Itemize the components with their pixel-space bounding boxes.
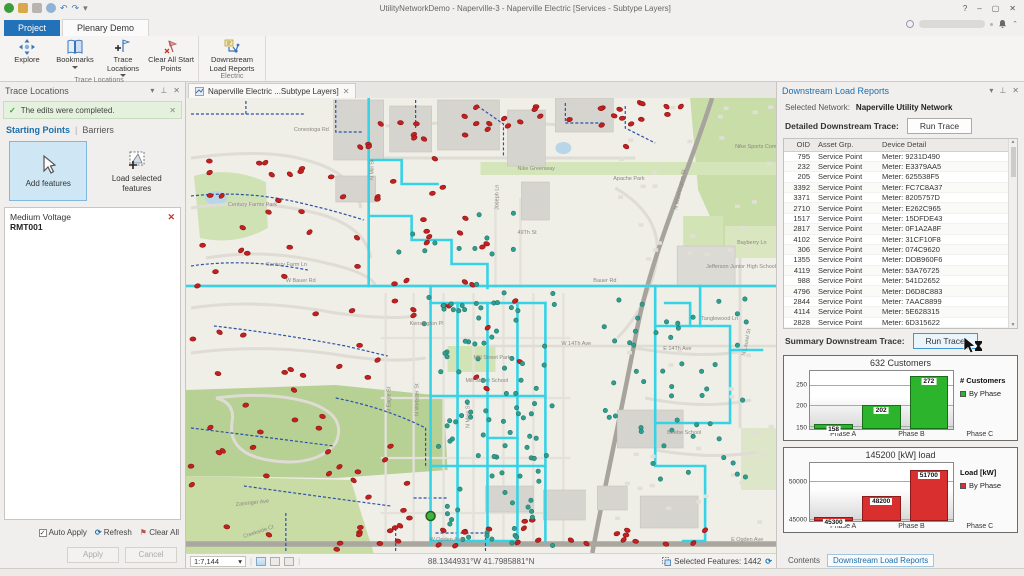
- chart-title: 145200 [kW] load: [787, 449, 1014, 462]
- selected-service-point-dot: [740, 398, 744, 402]
- service-point-dot: [256, 161, 263, 166]
- selected-service-point-dot: [473, 246, 477, 250]
- map-street-label: Nike Sports Complex: [735, 144, 776, 150]
- table-row[interactable]: 4796Service PointMeter: D6D8C883: [784, 286, 1008, 296]
- selected-service-point-dot: [462, 307, 466, 311]
- minimize-button[interactable]: –: [977, 4, 981, 13]
- selected-service-point-dot: [632, 343, 636, 347]
- table-row[interactable]: 2817Service PointMeter: 0F1A2A8F: [784, 224, 1008, 234]
- selected-service-point-dot: [485, 534, 489, 538]
- tab-downstream-load-reports[interactable]: Downstream Load Reports: [827, 554, 934, 567]
- table-header-row: OID Asset Grp. Device Detail: [784, 139, 1008, 151]
- map-building: [703, 495, 708, 499]
- selected-service-point-dot: [397, 250, 401, 254]
- selected-service-point-dot: [651, 461, 655, 465]
- pane-pin-icon[interactable]: ⊥: [999, 86, 1006, 95]
- selected-service-point-dot: [525, 445, 529, 449]
- selected-service-point-dot: [661, 369, 665, 373]
- view-tabs: Contents Downstream Load Reports: [777, 553, 1024, 568]
- map-street-label: Bayberry Ln: [737, 240, 767, 246]
- selected-service-point-dot: [456, 508, 460, 512]
- selected-service-point-dot: [514, 318, 518, 322]
- service-point-dot: [206, 159, 212, 164]
- selected-service-point-dot: [529, 509, 533, 513]
- service-point-dot: [462, 530, 468, 535]
- selected-service-point-dot: [502, 366, 506, 370]
- selected-service-point-dot: [457, 370, 461, 374]
- close-button[interactable]: ✕: [1009, 4, 1016, 13]
- selected-service-point-dot: [445, 512, 449, 516]
- service-point-dot: [357, 343, 363, 347]
- chart-plot-area: 453004820051700: [809, 462, 954, 522]
- selected-service-point-dot: [501, 419, 505, 423]
- selected-service-point-dot: [731, 461, 735, 465]
- selected-service-point-dot: [494, 329, 498, 333]
- column-oid[interactable]: OID: [784, 139, 814, 151]
- redo-icon[interactable]: ↷: [72, 3, 80, 14]
- ribbon-group-trace-locations: Explore Bookmarks Trace Locations Clear …: [0, 36, 199, 81]
- chart-legend: # Customers By Phase: [954, 370, 1014, 430]
- map-street-label: Century Farm Ln: [266, 262, 307, 268]
- selected-service-point-dot: [479, 306, 483, 310]
- selected-service-point-dot: [634, 369, 638, 373]
- selected-service-point-dot: [552, 302, 556, 306]
- selected-service-point-dot: [433, 241, 437, 245]
- tab-barriers[interactable]: Barriers: [82, 125, 114, 135]
- tab-starting-points[interactable]: Starting Points: [6, 125, 70, 135]
- notifications-bell-icon[interactable]: [998, 19, 1007, 29]
- pane-title: Downstream Load Reports: [782, 86, 983, 96]
- selected-service-point-dot: [544, 453, 548, 457]
- map-building: [670, 106, 675, 110]
- map-street-label: W Bauer Rd: [286, 278, 316, 284]
- selected-service-point-dot: [514, 406, 518, 410]
- table-row[interactable]: 205Service PointMeter: 625538F5: [784, 172, 1008, 182]
- help-button[interactable]: ?: [963, 4, 967, 13]
- map-building: [668, 363, 673, 367]
- bookmarks-button[interactable]: Bookmarks: [52, 38, 98, 69]
- app-status-strip: [0, 568, 1024, 576]
- pane-menu-icon[interactable]: ▾: [150, 86, 154, 95]
- map-street-label: Nike Greenway: [517, 166, 555, 172]
- selected-service-point-dot: [722, 455, 726, 459]
- explore-icon: [18, 39, 36, 55]
- map-street-label: Kensington Pl: [410, 321, 444, 327]
- map-street-label: Joseph Ln: [494, 185, 500, 210]
- map-street-label: Beebe School: [667, 430, 701, 436]
- tab-plenary-demo[interactable]: Plenary Demo: [62, 19, 149, 36]
- maximize-button[interactable]: ▢: [992, 4, 1000, 13]
- app-logo-icon: [4, 3, 14, 13]
- ribbon-tab-row: Project Plenary Demo ⌃: [0, 16, 1024, 36]
- selected-service-point-dot: [445, 354, 449, 358]
- table-row[interactable]: 4114Service PointMeter: 5E628315: [784, 307, 1008, 317]
- service-point-dot: [390, 179, 396, 184]
- select-tool-icon[interactable]: [256, 557, 266, 566]
- tab-contents[interactable]: Contents: [783, 555, 825, 566]
- sync-icon[interactable]: [46, 3, 56, 13]
- starting-points-list: Medium Voltage RMT001 ✕: [4, 207, 181, 520]
- service-point-dot: [598, 106, 604, 111]
- map-coordinates: 88.1344931°W 41.7985881°N: [304, 557, 658, 566]
- pane-menu-icon[interactable]: ▾: [989, 86, 993, 95]
- service-point-dot: [664, 112, 670, 117]
- table-row[interactable]: 1355Service PointMeter: DDB960F6: [784, 255, 1008, 265]
- title-bar: ↶ ↷ ▾ UtilityNetworkDemo - Naperville-3 …: [0, 0, 1024, 16]
- service-point-dot: [623, 533, 629, 537]
- selected-service-point-dot: [676, 326, 680, 330]
- service-point-dot: [207, 193, 213, 197]
- selected-service-point-dot: [641, 379, 645, 383]
- table-row[interactable]: 3371Service PointMeter: 8205757D: [784, 193, 1008, 203]
- service-point-dot: [357, 525, 363, 530]
- window-title: UtilityNetworkDemo - Naperville-3 - Nape…: [88, 4, 963, 13]
- selected-service-point-dot: [514, 391, 518, 395]
- pane-title: Trace Locations: [5, 86, 144, 96]
- list-tool-icon[interactable]: [284, 557, 294, 566]
- selected-service-point-dot: [458, 487, 462, 491]
- selection-icon: [662, 557, 671, 566]
- selected-service-point-dot: [457, 309, 461, 313]
- selected-service-point-dot: [744, 320, 748, 324]
- map-street-label: Apache Park: [613, 176, 645, 182]
- selected-service-point-dot: [550, 543, 554, 547]
- selected-service-point-dot: [717, 299, 721, 303]
- selected-service-point-dot: [511, 247, 515, 251]
- save-project-icon[interactable]: [32, 3, 42, 13]
- selected-service-point-dot: [460, 303, 464, 307]
- map-building: [762, 453, 767, 457]
- dot-separator-icon: [990, 23, 993, 26]
- starting-point-item[interactable]: Medium Voltage RMT001 ✕: [5, 208, 180, 236]
- map-building: [719, 136, 724, 140]
- table-row[interactable]: 2710Service PointMeter: E262C965: [784, 203, 1008, 213]
- selected-service-point-dot: [490, 252, 494, 256]
- selected-service-point-dot: [662, 444, 666, 448]
- service-point-dot: [328, 174, 334, 179]
- selected-service-point-dot: [509, 305, 513, 309]
- dropdown-caret-icon: [72, 66, 78, 69]
- tab-project[interactable]: Project: [4, 20, 60, 36]
- map-scale-select[interactable]: 1:7,144▾: [190, 556, 246, 567]
- clear-all-start-points-button[interactable]: Clear All Start Points: [148, 38, 194, 73]
- selected-service-point-dot: [602, 324, 606, 328]
- map-street-label: N Webster St: [415, 383, 421, 416]
- legend-swatch: [960, 483, 966, 489]
- chart-bar: 158: [814, 424, 853, 429]
- map-tab-icon: [195, 87, 204, 96]
- selected-service-point-dot: [704, 387, 708, 391]
- selected-service-point-dot: [451, 308, 455, 312]
- selected-service-point-dot: [636, 316, 640, 320]
- selected-service-point-dot: [447, 419, 451, 423]
- selected-service-point-dot: [528, 434, 532, 438]
- map-tab-close-icon[interactable]: ✕: [343, 87, 350, 96]
- selected-features-count: Selected Features: 1442: [662, 557, 761, 566]
- map-building: [767, 162, 772, 166]
- ribbon-group-label: Electric: [199, 73, 265, 81]
- service-point-dot: [397, 120, 403, 125]
- selected-service-point-dot: [743, 297, 747, 301]
- map-building: [740, 226, 745, 230]
- map-street-label: N Main St: [466, 403, 472, 428]
- selected-service-point-dot: [487, 418, 491, 422]
- map-building: [730, 395, 735, 399]
- refresh-button[interactable]: ⟳ Refresh: [95, 528, 132, 537]
- selected-service-point-dot: [530, 515, 534, 519]
- service-point-dot: [638, 117, 644, 122]
- map-canvas[interactable]: Conestoga RdCentury Farms ParkCentury Fa…: [186, 98, 776, 553]
- selected-service-point-dot: [607, 415, 611, 419]
- service-point-dot: [316, 426, 322, 431]
- selected-service-point-dot: [466, 535, 470, 539]
- map-building: [615, 517, 620, 521]
- selected-service-point-dot: [510, 541, 514, 545]
- chart-plot-area: 158202272: [809, 370, 954, 430]
- scrollbar-thumb[interactable]: [1011, 147, 1016, 177]
- table-row[interactable]: 3392Service PointMeter: FC7C8A37: [784, 182, 1008, 192]
- chart-bar: 272: [910, 376, 949, 429]
- selected-service-point-dot: [633, 329, 637, 333]
- checkbox-checked-icon: ✓: [39, 529, 47, 537]
- map-building: [619, 157, 624, 161]
- selected-service-point-dot: [613, 414, 617, 418]
- map-building: [724, 106, 729, 110]
- map-image[interactable]: Conestoga RdCentury Farms ParkCentury Fa…: [186, 98, 776, 553]
- refresh-selection-icon[interactable]: ⟳: [765, 557, 772, 566]
- selected-service-point-dot: [439, 370, 443, 374]
- load-selected-features-button[interactable]: Load selected features: [98, 141, 176, 201]
- selected-service-point-dot: [510, 501, 514, 505]
- column-device-detail[interactable]: Device Detail: [878, 139, 1008, 151]
- selected-service-point-dot: [617, 298, 621, 302]
- selected-service-point-dot: [612, 339, 616, 343]
- legend-swatch: [960, 391, 966, 397]
- load-chart: 145200 [kW] load 4500050000 453004820051…: [783, 447, 1018, 533]
- selected-service-point-dot: [699, 369, 703, 373]
- map-building: [650, 484, 655, 488]
- service-point-dot: [200, 243, 206, 247]
- selected-service-point-dot: [449, 302, 453, 306]
- downstream-load-reports-pane: Downstream Load Reports ▾ ⊥ ✕ Selected N…: [777, 82, 1024, 568]
- add-features-button[interactable]: Add features: [9, 141, 87, 201]
- mouse-cursor-busy-icon: [962, 337, 984, 357]
- selected-service-point-dot: [735, 472, 739, 476]
- selected-service-point-dot: [529, 498, 533, 502]
- selected-service-point-dot: [490, 474, 494, 478]
- map-building: [752, 200, 757, 204]
- selected-service-point-dot: [603, 408, 607, 412]
- map-status-bar: 1:7,144▾ | | 88.1344931°W 41.7985881°N S…: [186, 553, 776, 568]
- remove-starting-point-icon[interactable]: ✕: [167, 212, 175, 232]
- selected-service-point-dot: [503, 490, 507, 494]
- table-row[interactable]: 4102Service PointMeter: 31CF10F8: [784, 234, 1008, 244]
- detailed-trace-label: Detailed Downstream Trace:: [785, 121, 899, 131]
- selected-service-point-dot: [482, 341, 486, 345]
- table-row[interactable]: 306Service PointMeter: 074C9620: [784, 244, 1008, 254]
- chart-title: 632 Customers: [787, 357, 1014, 370]
- user-avatar-icon[interactable]: [906, 20, 914, 28]
- collapse-ribbon-icon[interactable]: ⌃: [1012, 20, 1018, 28]
- table-row[interactable]: 232Service PointMeter: E3379AA5: [784, 161, 1008, 171]
- message-close-icon[interactable]: ✕: [169, 106, 176, 115]
- selected-service-point-dot: [445, 504, 449, 508]
- selected-service-point-dot: [532, 401, 536, 405]
- chart-y-axis: 150200250: [787, 370, 809, 430]
- clear-all-icon: ⚑: [140, 528, 149, 537]
- trace-locations-flag-icon: [114, 39, 132, 55]
- add-features-cursor-icon: [37, 154, 59, 176]
- map-building: [628, 138, 633, 142]
- scroll-down-icon[interactable]: ▼: [1011, 322, 1016, 328]
- apply-button[interactable]: Apply: [67, 547, 119, 563]
- selected-service-point-dot: [477, 213, 481, 217]
- selected-service-point-dot: [484, 409, 488, 413]
- service-point-dot: [406, 516, 412, 521]
- selected-service-point-dot: [664, 320, 668, 324]
- map-street-label: Century Farms Park: [228, 202, 277, 208]
- clear-all-button[interactable]: ⚑ Clear All: [140, 528, 179, 537]
- selected-service-point-dot: [490, 335, 494, 339]
- selected-service-point-dot: [639, 429, 643, 433]
- selected-service-point-dot: [492, 454, 496, 458]
- selected-service-point-dot: [640, 302, 644, 306]
- map-building: [727, 248, 732, 252]
- service-point-dot: [287, 245, 293, 250]
- map-building: [639, 223, 644, 227]
- map-street-label: N Mill St: [370, 159, 376, 180]
- map-building: [653, 185, 658, 189]
- selected-service-point-dot: [519, 378, 523, 382]
- chart-y-axis: 4500050000: [787, 462, 809, 522]
- auto-apply-checkbox[interactable]: ✓Auto Apply: [39, 528, 87, 537]
- pane-pin-icon[interactable]: ⊥: [160, 86, 167, 95]
- map-building: [651, 455, 656, 459]
- map-tab[interactable]: Naperville Electric ...Subtype Layers] ✕: [188, 83, 356, 98]
- service-point-dot: [522, 519, 528, 524]
- selected-service-point-dot: [512, 526, 516, 530]
- edits-completed-message: ✓ The edits were completed. ✕: [3, 101, 182, 119]
- table-row[interactable]: 1517Service PointMeter: 15DFDE43: [784, 213, 1008, 223]
- cancel-button[interactable]: Cancel: [125, 547, 177, 563]
- table-row[interactable]: 2844Service PointMeter: 7AAC8899: [784, 296, 1008, 306]
- table-row[interactable]: 988Service PointMeter: 541D2652: [784, 276, 1008, 286]
- selected-service-point-dot: [658, 477, 662, 481]
- selected-service-point-dot: [680, 362, 684, 366]
- selected-service-point-dot: [427, 295, 431, 299]
- selected-service-point-dot: [675, 418, 679, 422]
- selected-service-point-dot: [453, 420, 457, 424]
- map-building: [627, 351, 632, 355]
- selected-service-point-dot: [516, 412, 520, 416]
- selected-service-point-dot: [495, 300, 499, 304]
- service-point-dot: [420, 218, 426, 222]
- selected-service-point-dot: [551, 291, 555, 295]
- map-building: [753, 111, 758, 115]
- map-building: [638, 487, 643, 491]
- chart-bar: 48200: [862, 496, 901, 521]
- trace-locations-pane: Trace Locations ▾ ⊥ ✕ ✓ The edits were c…: [0, 82, 186, 568]
- selected-service-point-dot: [526, 505, 530, 509]
- selected-service-point-dot: [436, 444, 440, 448]
- selected-network-value: Naperville Utility Network: [856, 103, 952, 112]
- map-street-label: W Ogden Ave: [430, 537, 464, 543]
- service-point-dot: [391, 281, 397, 286]
- service-point-dot: [354, 264, 360, 269]
- selected-service-point-dot: [502, 291, 506, 295]
- selected-service-point-dot: [474, 301, 478, 305]
- scroll-up-icon[interactable]: ▲: [1011, 139, 1016, 145]
- table-row[interactable]: 2828Service PointMeter: 6D315622: [784, 317, 1008, 328]
- selected-service-point-dot: [542, 344, 546, 348]
- customers-chart: 632 Customers 150200250 158202272 # Cust…: [783, 355, 1018, 441]
- service-point-dot: [413, 122, 419, 126]
- map-building: [735, 205, 740, 209]
- selected-service-point-dot: [448, 522, 452, 526]
- pane-close-icon[interactable]: ✕: [173, 86, 180, 95]
- map-building: [652, 171, 657, 175]
- selected-service-point-dot: [627, 341, 631, 345]
- selected-service-point-dot: [708, 422, 712, 426]
- selected-service-point-dot: [669, 335, 673, 339]
- quick-access-toolbar: ↶ ↷ ▾: [4, 3, 88, 14]
- selected-service-point-dot: [503, 444, 507, 448]
- trace-locations-button[interactable]: Trace Locations: [100, 38, 146, 77]
- trace-results-table[interactable]: OID Asset Grp. Device Detail 795Service …: [783, 138, 1018, 329]
- run-detailed-trace-button[interactable]: Run Trace: [907, 118, 972, 134]
- downstream-load-reports-button[interactable]: Downstream Load Reports: [203, 38, 261, 73]
- service-point-dot: [355, 470, 361, 474]
- map-tab-bar: Naperville Electric ...Subtype Layers] ✕: [186, 82, 776, 98]
- starting-point-marker[interactable]: [426, 512, 435, 521]
- selected-service-point-dot: [500, 471, 504, 475]
- undo-icon[interactable]: ↶: [60, 3, 68, 14]
- selected-service-point-dot: [473, 342, 477, 346]
- service-point-dot: [257, 430, 263, 434]
- selected-service-point-dot: [445, 424, 449, 428]
- selected-service-point-dot: [474, 282, 478, 286]
- selected-service-point-dot: [717, 437, 721, 441]
- clear-start-points-icon: [162, 39, 180, 55]
- selected-service-point-dot: [735, 343, 739, 347]
- service-point-dot: [244, 251, 250, 255]
- selected-service-point-dot: [514, 535, 518, 539]
- table-row[interactable]: 795Service PointMeter: 9231D490: [784, 151, 1008, 161]
- open-project-icon[interactable]: [18, 3, 28, 13]
- explore-button[interactable]: Explore: [4, 38, 50, 65]
- ribbon: Explore Bookmarks Trace Locations Clear …: [0, 36, 1024, 82]
- table-row[interactable]: 4119Service PointMeter: 53A76725: [784, 265, 1008, 275]
- snapping-tool-icon[interactable]: [270, 557, 280, 566]
- selected-service-point-dot: [477, 316, 481, 320]
- selected-service-point-dot: [516, 308, 520, 312]
- map-building: [690, 234, 695, 238]
- column-asset-grp[interactable]: Asset Grp.: [814, 139, 878, 151]
- chart-legend: Load [kW] By Phase: [954, 462, 1014, 522]
- table-scrollbar[interactable]: ▲ ▼: [1008, 139, 1017, 328]
- selected-service-point-dot: [511, 211, 515, 215]
- map-building: [625, 482, 630, 486]
- selected-service-point-dot: [476, 453, 480, 457]
- map-building: [657, 241, 662, 245]
- map-building: [634, 453, 639, 457]
- pane-close-icon[interactable]: ✕: [1012, 86, 1019, 95]
- service-point-dot: [365, 375, 371, 380]
- service-point-dot: [212, 269, 218, 274]
- refresh-icon: ⟳: [95, 528, 104, 537]
- map-building: [687, 252, 692, 256]
- load-selected-features-icon: [126, 149, 148, 171]
